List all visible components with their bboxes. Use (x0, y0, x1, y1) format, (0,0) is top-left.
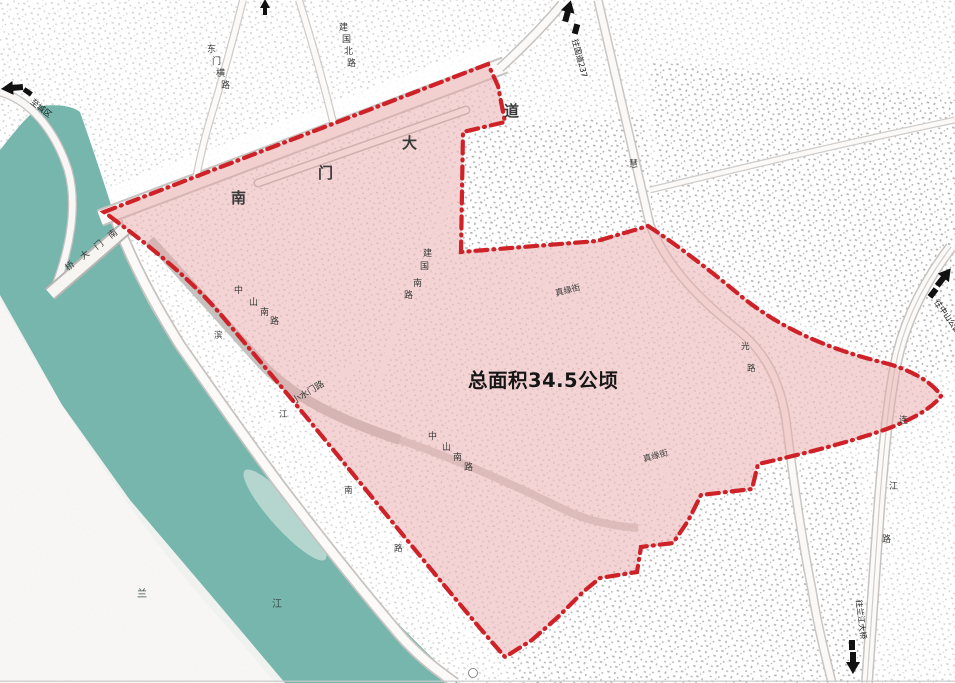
zhongshan-a-char-2: 南 (260, 306, 269, 318)
zhongshan-a-char-0: 中 (234, 284, 243, 296)
zhongshan-b-char-2: 南 (453, 451, 462, 463)
binjiang-char-2: 南 (344, 485, 353, 496)
river-name-char-1: 江 (272, 598, 282, 610)
dongmen-char-2: 横 (216, 67, 225, 79)
hui-road-label: 慧 (629, 158, 638, 170)
planning-map: 总面积34.5公顷 南 门 大 道 桥 大 门 南 中 山 南 路 中 山 南 … (0, 0, 955, 683)
zhongshan-b-char-1: 山 (442, 442, 451, 453)
nanmen-dadao-char-2: 大 (402, 134, 417, 152)
lu-char-label: 路 (747, 363, 756, 374)
dongmen-char-1: 门 (212, 55, 221, 67)
map-canvas: 总面积34.5公顷 南 门 大 道 桥 大 门 南 中 山 南 路 中 山 南 … (0, 0, 955, 683)
bottom-border-line (0, 681, 955, 682)
jianguo-north-char-2: 北 (344, 46, 353, 57)
binjiang-char-3: 路 (394, 543, 403, 554)
zhongshan-b-char-0: 中 (428, 430, 437, 442)
zhongshan-a-char-1: 山 (249, 297, 258, 308)
jianguo-south-char-3: 路 (404, 289, 413, 301)
jianguo-south-char-2: 南 (413, 277, 422, 289)
lianjiang-char-0: 连 (899, 414, 908, 426)
lianjiang-char-1: 江 (889, 481, 898, 492)
jianguo-north-char-3: 路 (347, 57, 356, 69)
dongmen-char-3: 路 (221, 79, 230, 91)
jianguo-south-char-0: 建 (423, 247, 432, 259)
nanmen-dadao-char-3: 道 (504, 102, 519, 120)
south-arrow-tick (849, 640, 855, 650)
jianguo-south-char-1: 国 (420, 261, 429, 272)
zhongshan-a-char-3: 路 (270, 315, 279, 327)
binjiang-char-0: 滨 (214, 330, 223, 341)
guang-char-label: 光 (741, 341, 750, 352)
jianguo-north-char-1: 国 (342, 34, 351, 45)
river-name-char-0: 兰 (137, 587, 147, 600)
total-area-label: 总面积34.5公顷 (468, 369, 618, 392)
circle-marker (469, 669, 478, 678)
zhongshan-b-char-3: 路 (464, 461, 473, 473)
lianjiang-char-2: 路 (882, 533, 891, 545)
nanmen-dadao-char-1: 门 (318, 164, 333, 182)
nanmen-dadao-char-0: 南 (231, 189, 246, 207)
jianguo-north-char-0: 建 (339, 21, 348, 33)
binjiang-char-1: 江 (279, 410, 288, 420)
dongmen-char-0: 东 (207, 43, 216, 55)
